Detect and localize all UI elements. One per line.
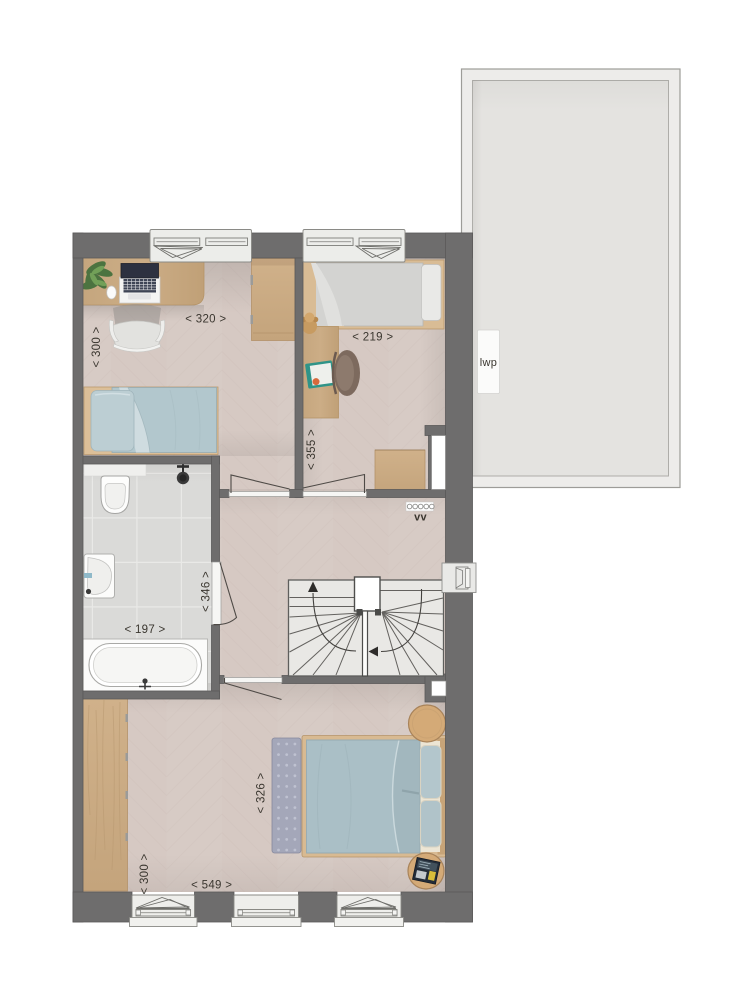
svg-text:< 355 >: < 355 >: [306, 429, 318, 470]
svg-text:lwp: lwp: [480, 357, 497, 369]
svg-text:< 326 >: < 326 >: [256, 772, 268, 813]
svg-text:vv: vv: [414, 511, 427, 523]
svg-text:< 300 >: < 300 >: [139, 853, 151, 894]
svg-text:< 346 >: < 346 >: [201, 571, 213, 612]
svg-text:< 219 >: < 219 >: [352, 332, 393, 344]
svg-text:< 549 >: < 549 >: [191, 880, 232, 892]
svg-text:< 197 >: < 197 >: [124, 624, 165, 636]
svg-text:< 300 >: < 300 >: [91, 326, 103, 367]
svg-text:< 320 >: < 320 >: [185, 313, 226, 325]
